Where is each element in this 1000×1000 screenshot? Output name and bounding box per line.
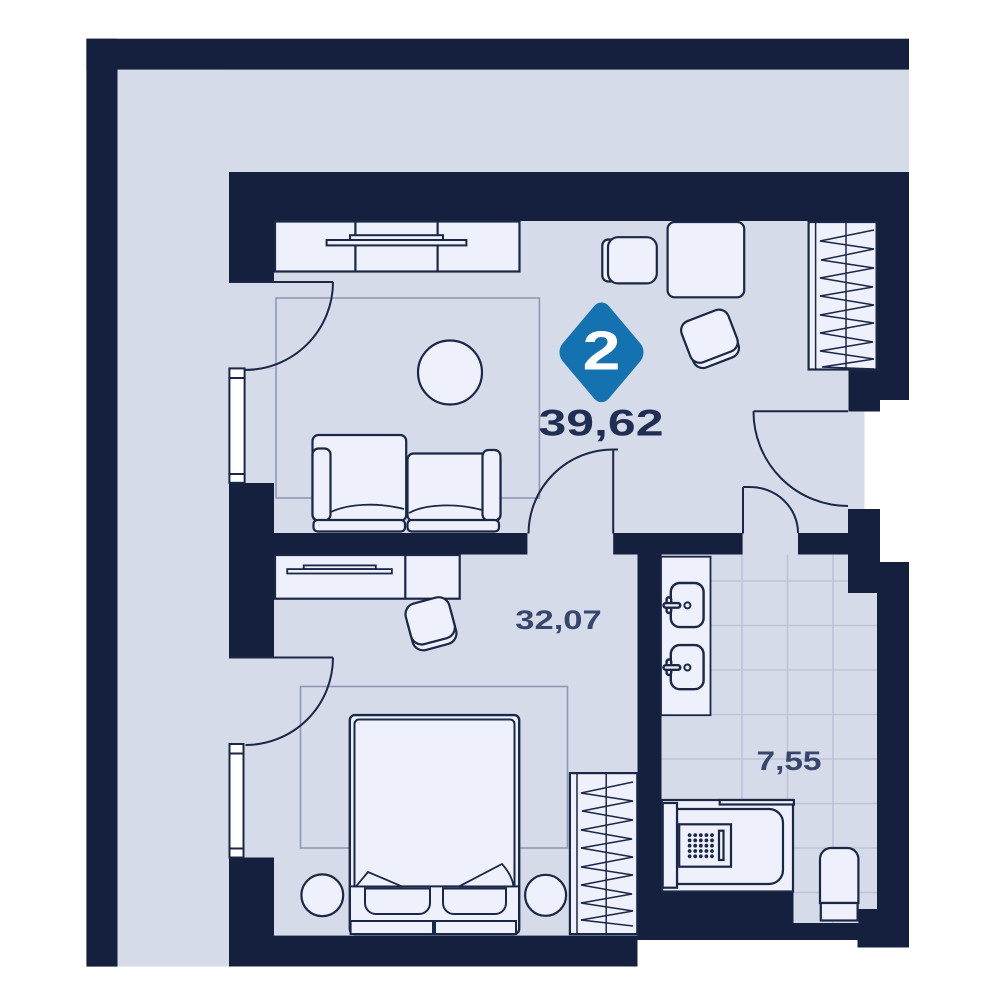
svg-text:32,07: 32,07 bbox=[515, 605, 602, 635]
svg-text:7,55: 7,55 bbox=[757, 746, 822, 776]
svg-text:39,62: 39,62 bbox=[539, 403, 664, 444]
svg-text:2: 2 bbox=[583, 320, 621, 382]
